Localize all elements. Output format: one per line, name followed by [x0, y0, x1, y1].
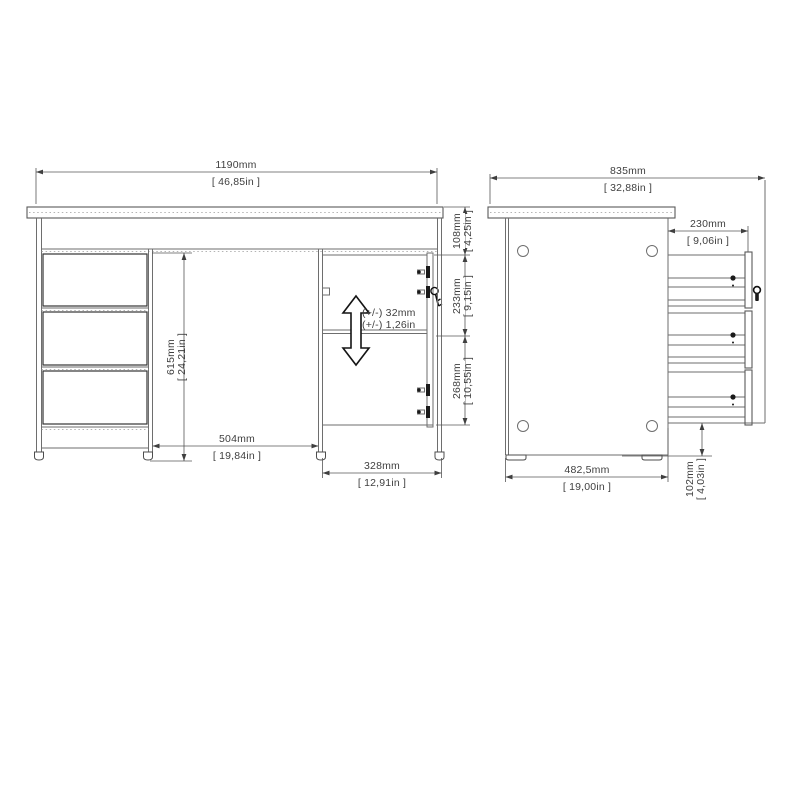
side-desktop [488, 207, 675, 218]
front-view: 1190mm [ 46,85in ] [27, 159, 474, 489]
drawer-front-1 [43, 254, 147, 306]
drawer-knob [730, 275, 735, 280]
front-drawer-unit-foot [144, 452, 153, 460]
cam-hole [647, 246, 658, 257]
dim-door-lower: 268mm [ 10,55in ] [451, 357, 474, 405]
key-icon [754, 287, 761, 301]
open-door-edge [427, 253, 433, 427]
side-drawers-extended [668, 180, 765, 425]
dim-overall-depth: 835mm [ 32,88in ] [490, 165, 765, 204]
dim-overall-width-in: [ 46,85in ] [212, 176, 260, 188]
dim-drawer-extension-mm: 230mm [690, 218, 726, 230]
side-front-foot [506, 455, 526, 460]
dim-base-depth: 482,5mm [ 19,00in ] [506, 428, 669, 493]
dim-base-depth-in: [ 19,00in ] [563, 481, 611, 493]
hinge-icon [417, 384, 430, 396]
dim-underdesk-height-in: [ 24,21in ] [176, 333, 188, 381]
front-desktop [27, 207, 443, 218]
dim-knee-space-in: [ 19,84in ] [213, 450, 261, 462]
technical-drawing-page: 1190mm [ 46,85in ] [0, 0, 800, 800]
drawer-knob [730, 332, 735, 337]
dim-door-upper-in: [ 9,15in ] [462, 275, 474, 317]
cam-hole [518, 421, 529, 432]
dim-knee-space-mm: 504mm [219, 433, 255, 445]
hinge-icon [417, 266, 430, 278]
side-drawer-1-front [745, 252, 752, 308]
dim-cabinet-width: 328mm [ 12,91in ] [323, 458, 442, 489]
side-drawer-1 [668, 252, 752, 308]
dim-overall-width: 1190mm [ 46,85in ] [36, 159, 437, 204]
drawer-front-3 [43, 371, 147, 424]
dim-drawer-extension-in: [ 9,06in ] [687, 235, 729, 247]
side-drawer-2-front [745, 311, 752, 368]
cam-hole [518, 246, 529, 257]
drawer-knob [730, 394, 735, 399]
front-right-panel [435, 218, 444, 460]
desk-dimension-drawing: 1190mm [ 46,85in ] [0, 0, 800, 800]
front-drawer-unit [42, 249, 153, 460]
front-cabinet [317, 249, 443, 460]
side-drawer-3 [668, 370, 752, 425]
front-cabinet-foot [317, 452, 326, 460]
side-drawer-2 [668, 311, 752, 368]
shelf-adjust-note-in: (+/-) 1,26in [362, 319, 415, 331]
side-drawer-3-front [745, 370, 752, 425]
dim-overall-depth-in: [ 32,88in ] [604, 182, 652, 194]
dim-apron-height: 108mm [ 4,25in ] [451, 210, 474, 252]
drawer-front-2 [43, 312, 147, 365]
hinge-icon [417, 286, 430, 298]
hinge-icon [417, 406, 430, 418]
dim-base-depth-mm: 482,5mm [564, 464, 609, 476]
front-right-foot [435, 452, 444, 460]
dim-drawer-extension: 230mm [ 9,06in ] [668, 218, 748, 252]
side-panel [506, 218, 669, 460]
shelf-support-catch [323, 288, 330, 295]
dim-overall-depth-mm: 835mm [610, 165, 646, 177]
cam-hole [647, 421, 658, 432]
dim-overall-width-mm: 1190mm [215, 159, 256, 171]
dim-underdesk-height: 615mm [ 24,21in ] [150, 253, 192, 461]
dim-cabinet-width-in: [ 12,91in ] [358, 477, 406, 489]
dim-floor-clearance: 102mm [ 4,03in ] [622, 423, 712, 500]
dim-cabinet-width-mm: 328mm [364, 460, 400, 472]
dim-knee-space: 504mm [ 19,84in ] [153, 433, 319, 462]
dim-floor-clearance-in: [ 4,03in ] [695, 458, 707, 500]
side-view: 835mm [ 32,88in ] 230mm [488, 165, 765, 500]
dim-apron-height-in: [ 4,25in ] [462, 210, 474, 252]
front-left-foot [35, 452, 44, 460]
dim-right-stack: 108mm [ 4,25in ] 233mm [ 9,15in ] 268mm … [434, 207, 474, 425]
front-left-panel [35, 218, 44, 460]
dim-door-upper: 233mm [ 9,15in ] [451, 275, 474, 317]
shelf-adjust-note-mm: (+/-) 32mm [362, 307, 416, 319]
dim-door-lower-in: [ 10,55in ] [462, 357, 474, 405]
